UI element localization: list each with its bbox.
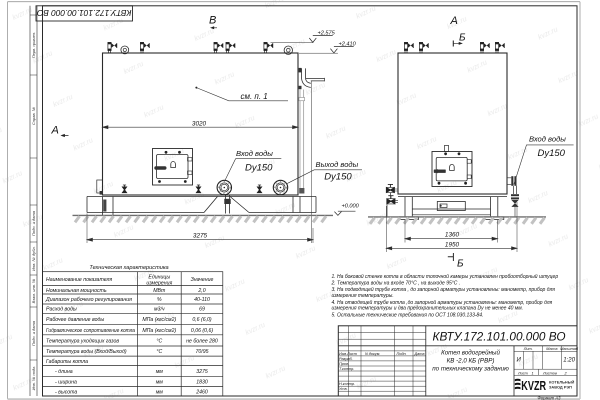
svg-text:Н.контр.: Н.контр. (339, 382, 355, 386)
svg-text:40-110: 40-110 (194, 297, 210, 303)
svg-text:Диапазон рабочего регулировани: Диапазон рабочего регулирования (45, 297, 132, 303)
svg-text:70/95: 70/95 (196, 349, 209, 355)
svg-text:°С: °С (156, 339, 162, 345)
svg-text:0,6 (6,0): 0,6 (6,0) (192, 317, 212, 323)
svg-text:Б: Б (459, 33, 466, 44)
svg-text:мм: мм (156, 369, 164, 375)
svg-text:МПа (кгс/см2): МПа (кгс/см2) (142, 328, 176, 334)
svg-text:1360: 1360 (445, 232, 460, 239)
svg-text:Т.контр.: Т.контр. (339, 367, 354, 371)
svg-text:Дата: Дата (414, 352, 425, 356)
svg-text:Лит.: Лит. (523, 347, 533, 351)
svg-text:°С: °С (156, 349, 162, 355)
svg-text:В: В (209, 15, 216, 27)
svg-text:Температура уходящих газов: Температура уходящих газов (46, 339, 119, 345)
svg-text:Расход воды: Расход воды (46, 307, 77, 313)
svg-text:Подп. и дата: Подп. и дата (31, 320, 36, 346)
svg-text:2460: 2460 (195, 389, 208, 395)
svg-text:ЗАВОД РЭП: ЗАВОД РЭП (549, 385, 572, 390)
svg-text:Вход воды: Вход воды (529, 135, 566, 144)
svg-text:69: 69 (199, 307, 205, 313)
svg-text:+2.410: +2.410 (339, 42, 357, 48)
svg-text:3275: 3275 (196, 369, 208, 375)
svg-text:%: % (157, 297, 162, 303)
svg-text:Котел водогрейный: Котел водогрейный (441, 350, 500, 357)
svg-text:не более 280: не более 280 (186, 339, 218, 345)
svg-text:3275: 3275 (193, 233, 208, 240)
svg-text:Гидравлическое сопротивление к: Гидравлическое сопротивление котла (46, 328, 135, 334)
svg-text:Лист: Лист (517, 371, 528, 375)
svg-text:Вход воды: Вход воды (236, 149, 273, 158)
svg-text:Справ. №: Справ. № (31, 106, 36, 125)
svg-text:Наименование показателя: Наименование показателя (46, 277, 112, 283)
svg-text:измерения температуры.: измерения температуры. (332, 293, 394, 299)
svg-text:МПа (кгс/см2): МПа (кгс/см2) (142, 317, 176, 323)
svg-text:Б: Б (457, 259, 464, 270)
svg-text:измерения: измерения (146, 280, 172, 286)
svg-text:Dy150: Dy150 (324, 172, 352, 183)
svg-text:Значение: Значение (191, 277, 214, 283)
svg-text:Температура воды (Вход/Выход): Температура воды (Вход/Выход) (46, 349, 127, 355)
svg-text:м3/ч: м3/ч (154, 307, 165, 313)
svg-text:по техническому заданию: по техническому заданию (432, 366, 509, 373)
svg-text:КВТУ.172.101.00.000 ВО: КВТУ.172.101.00.000 ВО (433, 330, 566, 344)
svg-text:Рабочее давление воды: Рабочее давление воды (46, 317, 104, 323)
svg-text:Dy150: Dy150 (245, 162, 273, 173)
svg-text:КВ -2,0 КБ (РВР): КВ -2,0 КБ (РВР) (447, 358, 495, 365)
svg-text:Техническая характеристика: Техническая характеристика (89, 265, 168, 271)
svg-text:см. п. 1: см. п. 1 (241, 92, 268, 101)
svg-text:1830: 1830 (196, 379, 208, 385)
svg-text:Инв. № дубл.: Инв. № дубл. (31, 246, 36, 271)
svg-text:Подп.: Подп. (397, 352, 407, 356)
svg-text:МВт: МВт (153, 288, 166, 294)
svg-text:Пров.: Пров. (339, 362, 349, 366)
svg-text:0,06 (0,6): 0,06 (0,6) (191, 328, 213, 334)
svg-text:2,0: 2,0 (197, 288, 205, 294)
svg-text:1: 1 (532, 371, 534, 375)
svg-text:Утв.: Утв. (339, 387, 348, 391)
svg-text:- ширина: - ширина (55, 379, 77, 385)
svg-text:5. Остальные технические треб: 5. Остальные технические требования по О… (332, 312, 484, 318)
svg-text:Взам. инв. №: Взам. инв. № (31, 278, 36, 303)
svg-text:- длина: - длина (55, 369, 73, 375)
svg-text:Формат А3: Формат А3 (538, 395, 562, 400)
svg-text:мм: мм (156, 389, 164, 395)
svg-text:Изм.Лист: Изм.Лист (339, 352, 357, 356)
svg-text:1950: 1950 (445, 241, 460, 248)
svg-text:Dy150: Dy150 (538, 148, 566, 159)
svg-text:- высота: - высота (55, 389, 77, 395)
svg-text:Масса: Масса (546, 347, 557, 351)
svg-text:И: И (517, 358, 522, 364)
svg-text:KVZR: KVZR (521, 378, 546, 393)
svg-text:КВТУ.172.101.00.000 ВО: КВТУ.172.101.00.000 ВО (36, 8, 131, 18)
svg-text:Листов: Листов (542, 371, 557, 375)
svg-text:Разраб.: Разраб. (339, 357, 353, 361)
svg-text:+2.575: +2.575 (318, 31, 336, 37)
svg-text:А: А (450, 15, 458, 27)
svg-text:измерения температуры и два пр: измерения температуры и два предохраните… (332, 306, 524, 312)
svg-text:3020: 3020 (192, 120, 207, 127)
svg-text:Габариты котла: Габариты котла (46, 359, 88, 365)
svg-text:мм: мм (156, 379, 164, 385)
svg-text:Выход воды: Выход воды (316, 160, 359, 169)
svg-text:1. На боковой стенке котла в: 1. На боковой стенке котла в области топ… (332, 273, 559, 280)
svg-text:Номинальная мощность: Номинальная мощность (46, 288, 107, 294)
svg-text:А: А (51, 125, 59, 137)
svg-text:N докум.: N докум. (365, 352, 380, 356)
svg-text:Масштаб: Масштаб (560, 347, 579, 351)
svg-text:2. Температура воды на входе: 2. Температура воды на входе 70°С , на в… (331, 280, 461, 286)
svg-text:+0.000: +0.000 (342, 204, 360, 210)
svg-text:1:20: 1:20 (563, 358, 575, 364)
svg-text:Инв. № подл.: Инв. № подл. (31, 366, 36, 391)
svg-text:Подп. и дата: Подп. и дата (31, 210, 36, 236)
svg-text:Перв. примен.: Перв. примен. (31, 32, 36, 59)
